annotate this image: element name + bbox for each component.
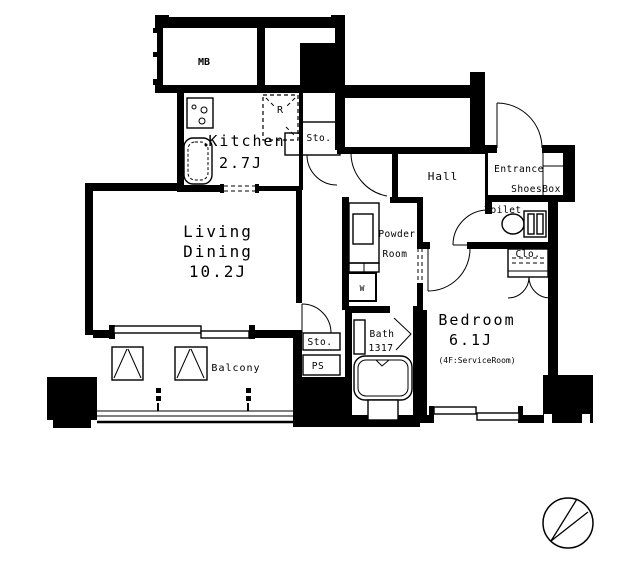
bath-label: Bath — [370, 329, 395, 340]
bath-step — [368, 400, 398, 420]
kitchen-storage-label: Sto. — [307, 133, 332, 144]
balcony-storage-label: Sto. — [308, 337, 333, 348]
toilet-door-arc — [453, 210, 488, 245]
entrance-door-arc — [497, 103, 542, 148]
floor-plan-page: MB Kitchen 2.7J Sto. R Living Dining 10.… — [0, 0, 640, 569]
balcony-label: Balcony — [211, 363, 260, 374]
powder-sliding-door — [418, 248, 422, 283]
balcony-hatch-panel — [175, 347, 207, 380]
washer-label: W — [360, 284, 365, 293]
corridor-door-arc — [307, 155, 337, 185]
bath-folding-door — [394, 318, 411, 350]
bedroom-label: Bedroom — [438, 311, 515, 329]
living-door-arc — [302, 304, 331, 333]
kitchen-size-label: 2.7J — [219, 154, 263, 172]
stove-icon — [187, 98, 213, 128]
compass-north-icon — [543, 498, 593, 548]
bedroom-note-label: (4F:ServiceRoom) — [438, 356, 515, 365]
kitchen-label: Kitchen — [208, 132, 285, 150]
closet-double-doors — [508, 277, 550, 298]
closet-label: Clo. — [516, 249, 541, 260]
balcony-area — [97, 347, 293, 422]
bedroom-door-arc — [428, 249, 470, 291]
living-label-1: Living — [183, 222, 253, 241]
pipe-space-label: PS — [312, 361, 324, 372]
balcony-partition-marks — [156, 388, 251, 411]
mb-label: MB — [198, 57, 210, 68]
entrance-label: Entrance — [494, 164, 544, 175]
powder-label-1: Powder — [378, 229, 415, 240]
bedroom-window — [429, 406, 523, 423]
living-label-2: Dining — [183, 242, 253, 261]
living-size-label: 10.2J — [189, 262, 247, 281]
shoes-box-label: ShoesBox — [511, 184, 561, 195]
toilet-label: Toilet — [484, 205, 521, 216]
powder-sink-icon — [349, 203, 379, 272]
floor-plan-drawing: MB Kitchen 2.7J Sto. R Living Dining 10.… — [0, 0, 640, 569]
hall-door-arc — [351, 154, 387, 196]
refrigerator-label: R — [277, 105, 284, 116]
hall-label: Hall — [428, 170, 459, 183]
balcony-hatch-panel — [112, 347, 143, 380]
bath-size-label: 1317 — [369, 343, 394, 354]
powder-label-2: Room — [383, 249, 408, 260]
left-pillar — [47, 377, 97, 428]
bedroom-size-label: 6.1J — [449, 331, 493, 349]
living-window — [114, 326, 249, 338]
right-pillar — [543, 375, 593, 423]
kitchen-opening — [220, 184, 259, 193]
